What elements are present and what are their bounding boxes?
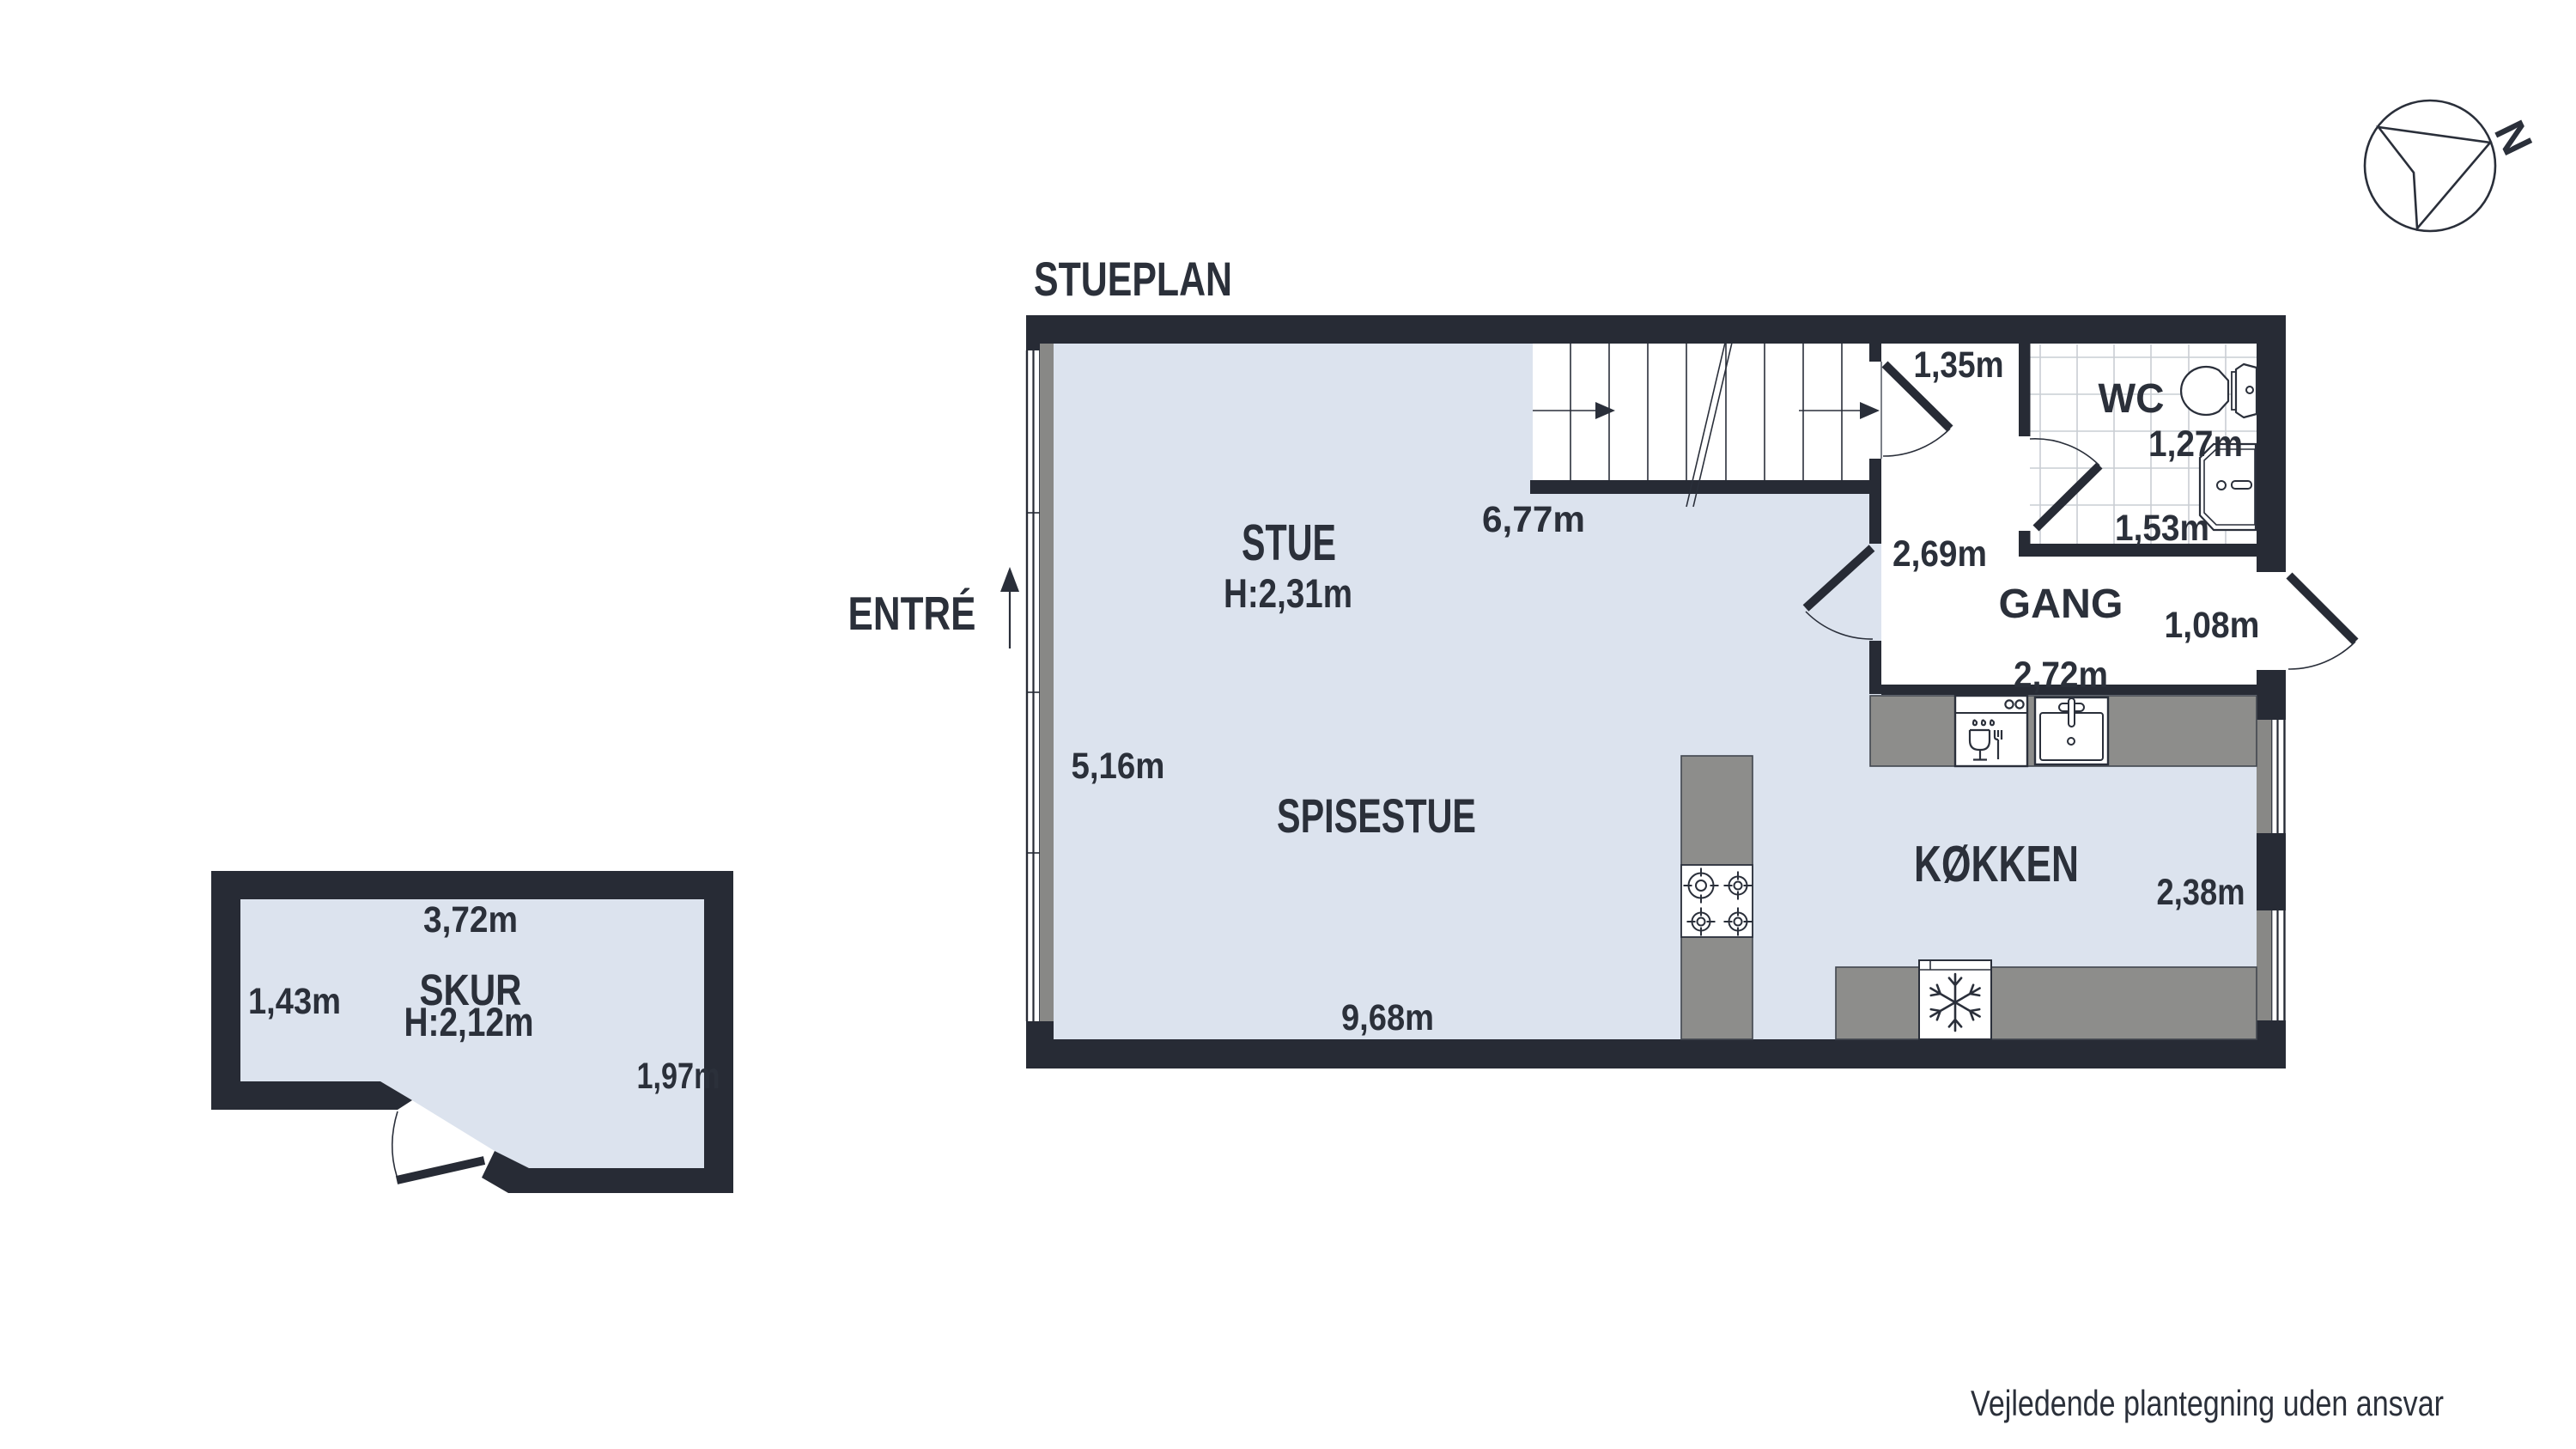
svg-text:5,16m: 5,16m xyxy=(1072,746,1165,787)
svg-text:2,72m: 2,72m xyxy=(2014,654,2108,696)
svg-text:ENTRÉ: ENTRÉ xyxy=(848,587,976,640)
svg-text:STUE: STUE xyxy=(1242,514,1336,571)
svg-text:H:2,31m: H:2,31m xyxy=(1224,570,1352,616)
svg-text:SPISESTUE: SPISESTUE xyxy=(1277,788,1476,843)
svg-text:Vejledende plantegning uden an: Vejledende plantegning uden ansvar xyxy=(1971,1383,2444,1423)
svg-text:9,68m: 9,68m xyxy=(1341,997,1434,1038)
svg-text:WC: WC xyxy=(2099,376,2165,422)
svg-text:KØKKEN: KØKKEN xyxy=(1914,836,2079,892)
svg-text:1,43m: 1,43m xyxy=(248,981,341,1022)
svg-text:1,27m: 1,27m xyxy=(2148,423,2243,465)
svg-text:GANG: GANG xyxy=(1999,581,2123,627)
svg-text:1,08m: 1,08m xyxy=(2165,605,2260,646)
svg-text:3,72m: 3,72m xyxy=(423,899,518,941)
svg-text:H:2,12m: H:2,12m xyxy=(404,999,534,1044)
svg-text:2,69m: 2,69m xyxy=(1893,533,1987,575)
svg-text:1,35m: 1,35m xyxy=(1914,344,2004,386)
svg-text:6,77m: 6,77m xyxy=(1482,499,1585,540)
svg-text:STUEPLAN: STUEPLAN xyxy=(1034,252,1232,306)
svg-text:1,97m: 1,97m xyxy=(637,1056,720,1097)
svg-text:1,53m: 1,53m xyxy=(2115,508,2209,549)
svg-text:2,38m: 2,38m xyxy=(2157,872,2245,913)
